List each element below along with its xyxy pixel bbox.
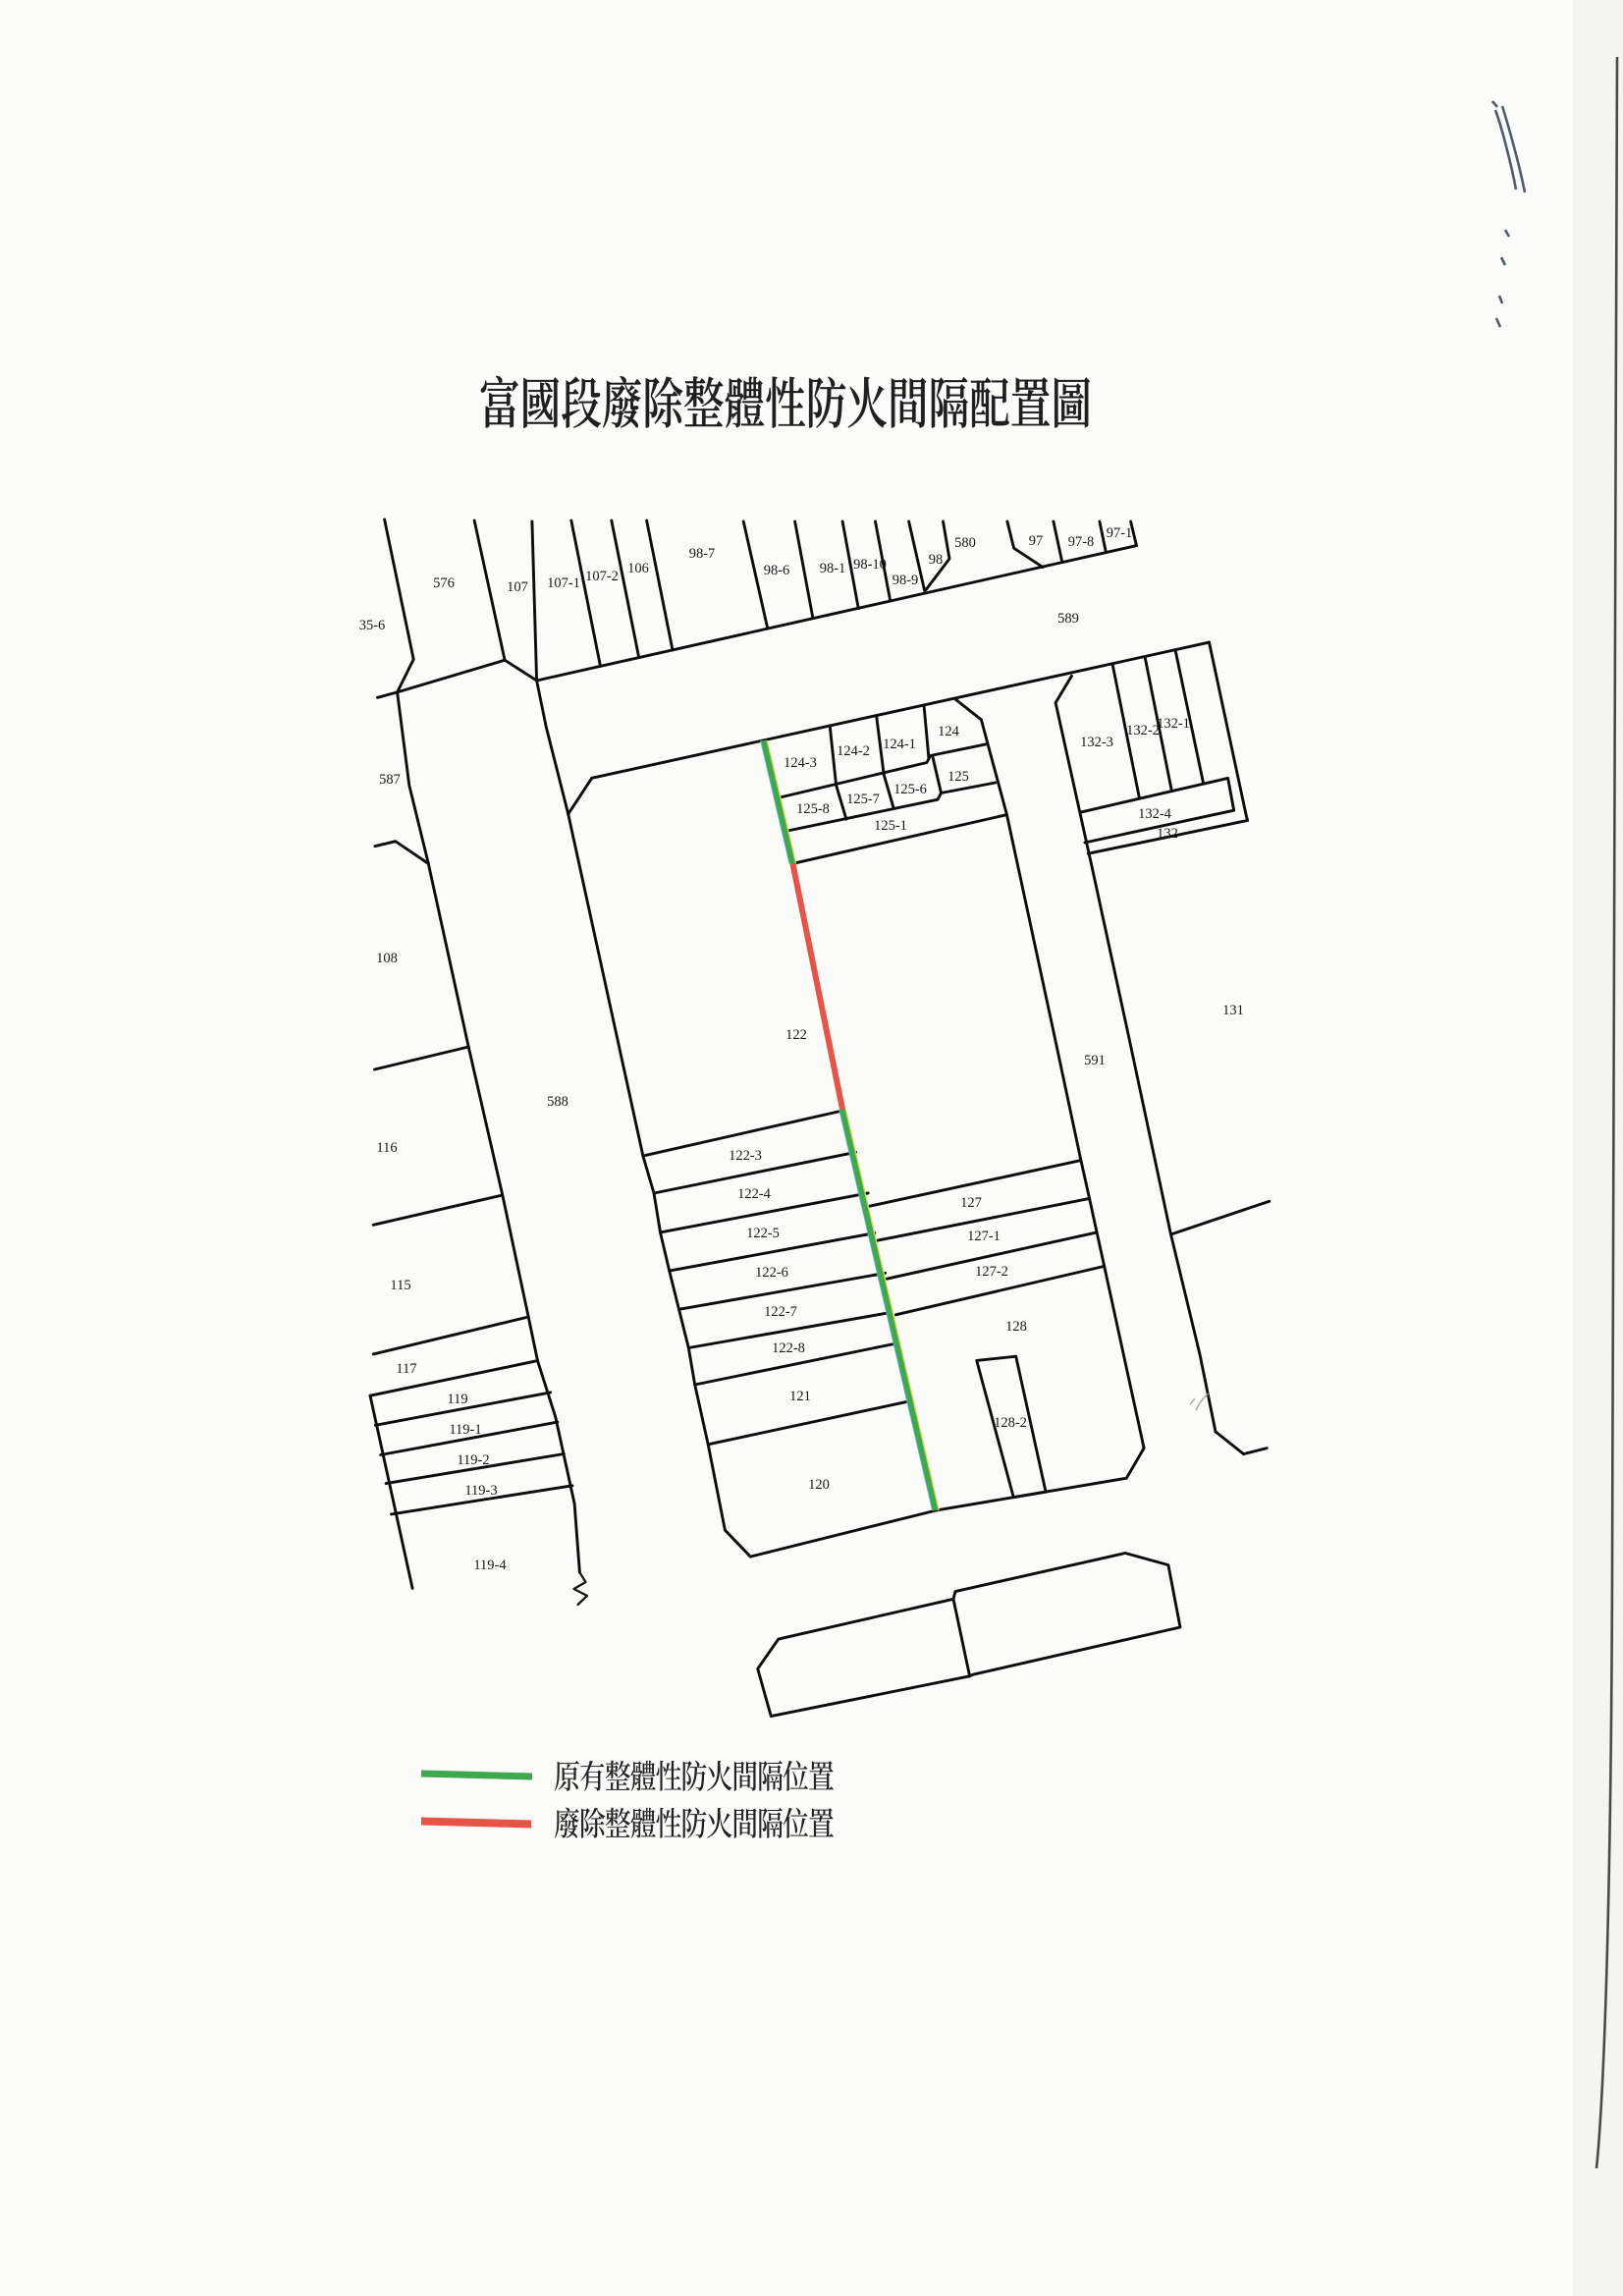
svg-text:122-7: 122-7 bbox=[764, 1304, 797, 1320]
svg-text:97-1: 97-1 bbox=[1107, 525, 1133, 541]
svg-text:125-1: 125-1 bbox=[874, 818, 907, 834]
svg-text:588: 588 bbox=[547, 1094, 568, 1110]
svg-text:580: 580 bbox=[954, 535, 976, 551]
svg-text:119: 119 bbox=[447, 1392, 467, 1407]
svg-text:591: 591 bbox=[1084, 1053, 1106, 1068]
svg-text:97: 97 bbox=[1029, 533, 1044, 549]
svg-text:132-2: 132-2 bbox=[1126, 723, 1160, 738]
svg-text:122-6: 122-6 bbox=[755, 1265, 788, 1281]
svg-text:127-2: 127-2 bbox=[975, 1264, 1008, 1280]
svg-text:128-2: 128-2 bbox=[994, 1415, 1027, 1431]
svg-text:121: 121 bbox=[789, 1389, 811, 1404]
svg-text:127-1: 127-1 bbox=[967, 1229, 1001, 1244]
svg-text:587: 587 bbox=[379, 772, 401, 788]
svg-text:125: 125 bbox=[947, 769, 969, 785]
svg-text:122-5: 122-5 bbox=[746, 1226, 780, 1241]
svg-text:119-4: 119-4 bbox=[473, 1558, 507, 1573]
svg-text:119-2: 119-2 bbox=[457, 1452, 489, 1468]
svg-text:117: 117 bbox=[396, 1361, 416, 1377]
svg-text:122: 122 bbox=[785, 1027, 807, 1043]
svg-text:125-7: 125-7 bbox=[846, 792, 880, 807]
svg-text:132-1: 132-1 bbox=[1157, 716, 1190, 732]
svg-text:131: 131 bbox=[1222, 1003, 1244, 1018]
svg-text:107: 107 bbox=[507, 579, 528, 595]
svg-text:98-7: 98-7 bbox=[689, 546, 716, 562]
svg-text:124: 124 bbox=[938, 724, 960, 739]
svg-text:115: 115 bbox=[390, 1278, 410, 1293]
svg-text:98-9: 98-9 bbox=[893, 573, 919, 588]
svg-text:128: 128 bbox=[1005, 1319, 1027, 1335]
svg-text:132-4: 132-4 bbox=[1138, 806, 1172, 822]
svg-text:124-1: 124-1 bbox=[883, 737, 916, 752]
svg-text:119-3: 119-3 bbox=[464, 1483, 497, 1499]
svg-text:132-3: 132-3 bbox=[1080, 735, 1113, 750]
svg-text:122-8: 122-8 bbox=[772, 1340, 805, 1356]
svg-text:132: 132 bbox=[1157, 826, 1178, 842]
svg-text:107-2: 107-2 bbox=[585, 569, 619, 584]
svg-text:35-6: 35-6 bbox=[359, 618, 386, 633]
svg-text:108: 108 bbox=[376, 951, 398, 966]
svg-text:106: 106 bbox=[627, 561, 649, 576]
svg-text:576: 576 bbox=[433, 575, 455, 591]
svg-text:116: 116 bbox=[376, 1140, 397, 1156]
svg-text:120: 120 bbox=[808, 1477, 830, 1493]
svg-text:124-3: 124-3 bbox=[784, 755, 817, 771]
svg-text:122-4: 122-4 bbox=[737, 1186, 772, 1202]
svg-text:97-8: 97-8 bbox=[1068, 534, 1095, 550]
svg-text:127: 127 bbox=[960, 1195, 982, 1211]
svg-text:119-1: 119-1 bbox=[449, 1422, 481, 1438]
svg-text:125-6: 125-6 bbox=[893, 782, 927, 797]
svg-text:98-10: 98-10 bbox=[853, 557, 887, 573]
svg-text:124-2: 124-2 bbox=[837, 743, 870, 759]
svg-text:98-1: 98-1 bbox=[820, 561, 846, 576]
svg-text:98-6: 98-6 bbox=[764, 563, 790, 578]
svg-text:125-8: 125-8 bbox=[796, 801, 830, 817]
svg-text:589: 589 bbox=[1057, 611, 1079, 627]
svg-text:107-1: 107-1 bbox=[547, 575, 580, 591]
svg-text:98: 98 bbox=[929, 552, 944, 568]
svg-text:122-3: 122-3 bbox=[729, 1148, 762, 1164]
